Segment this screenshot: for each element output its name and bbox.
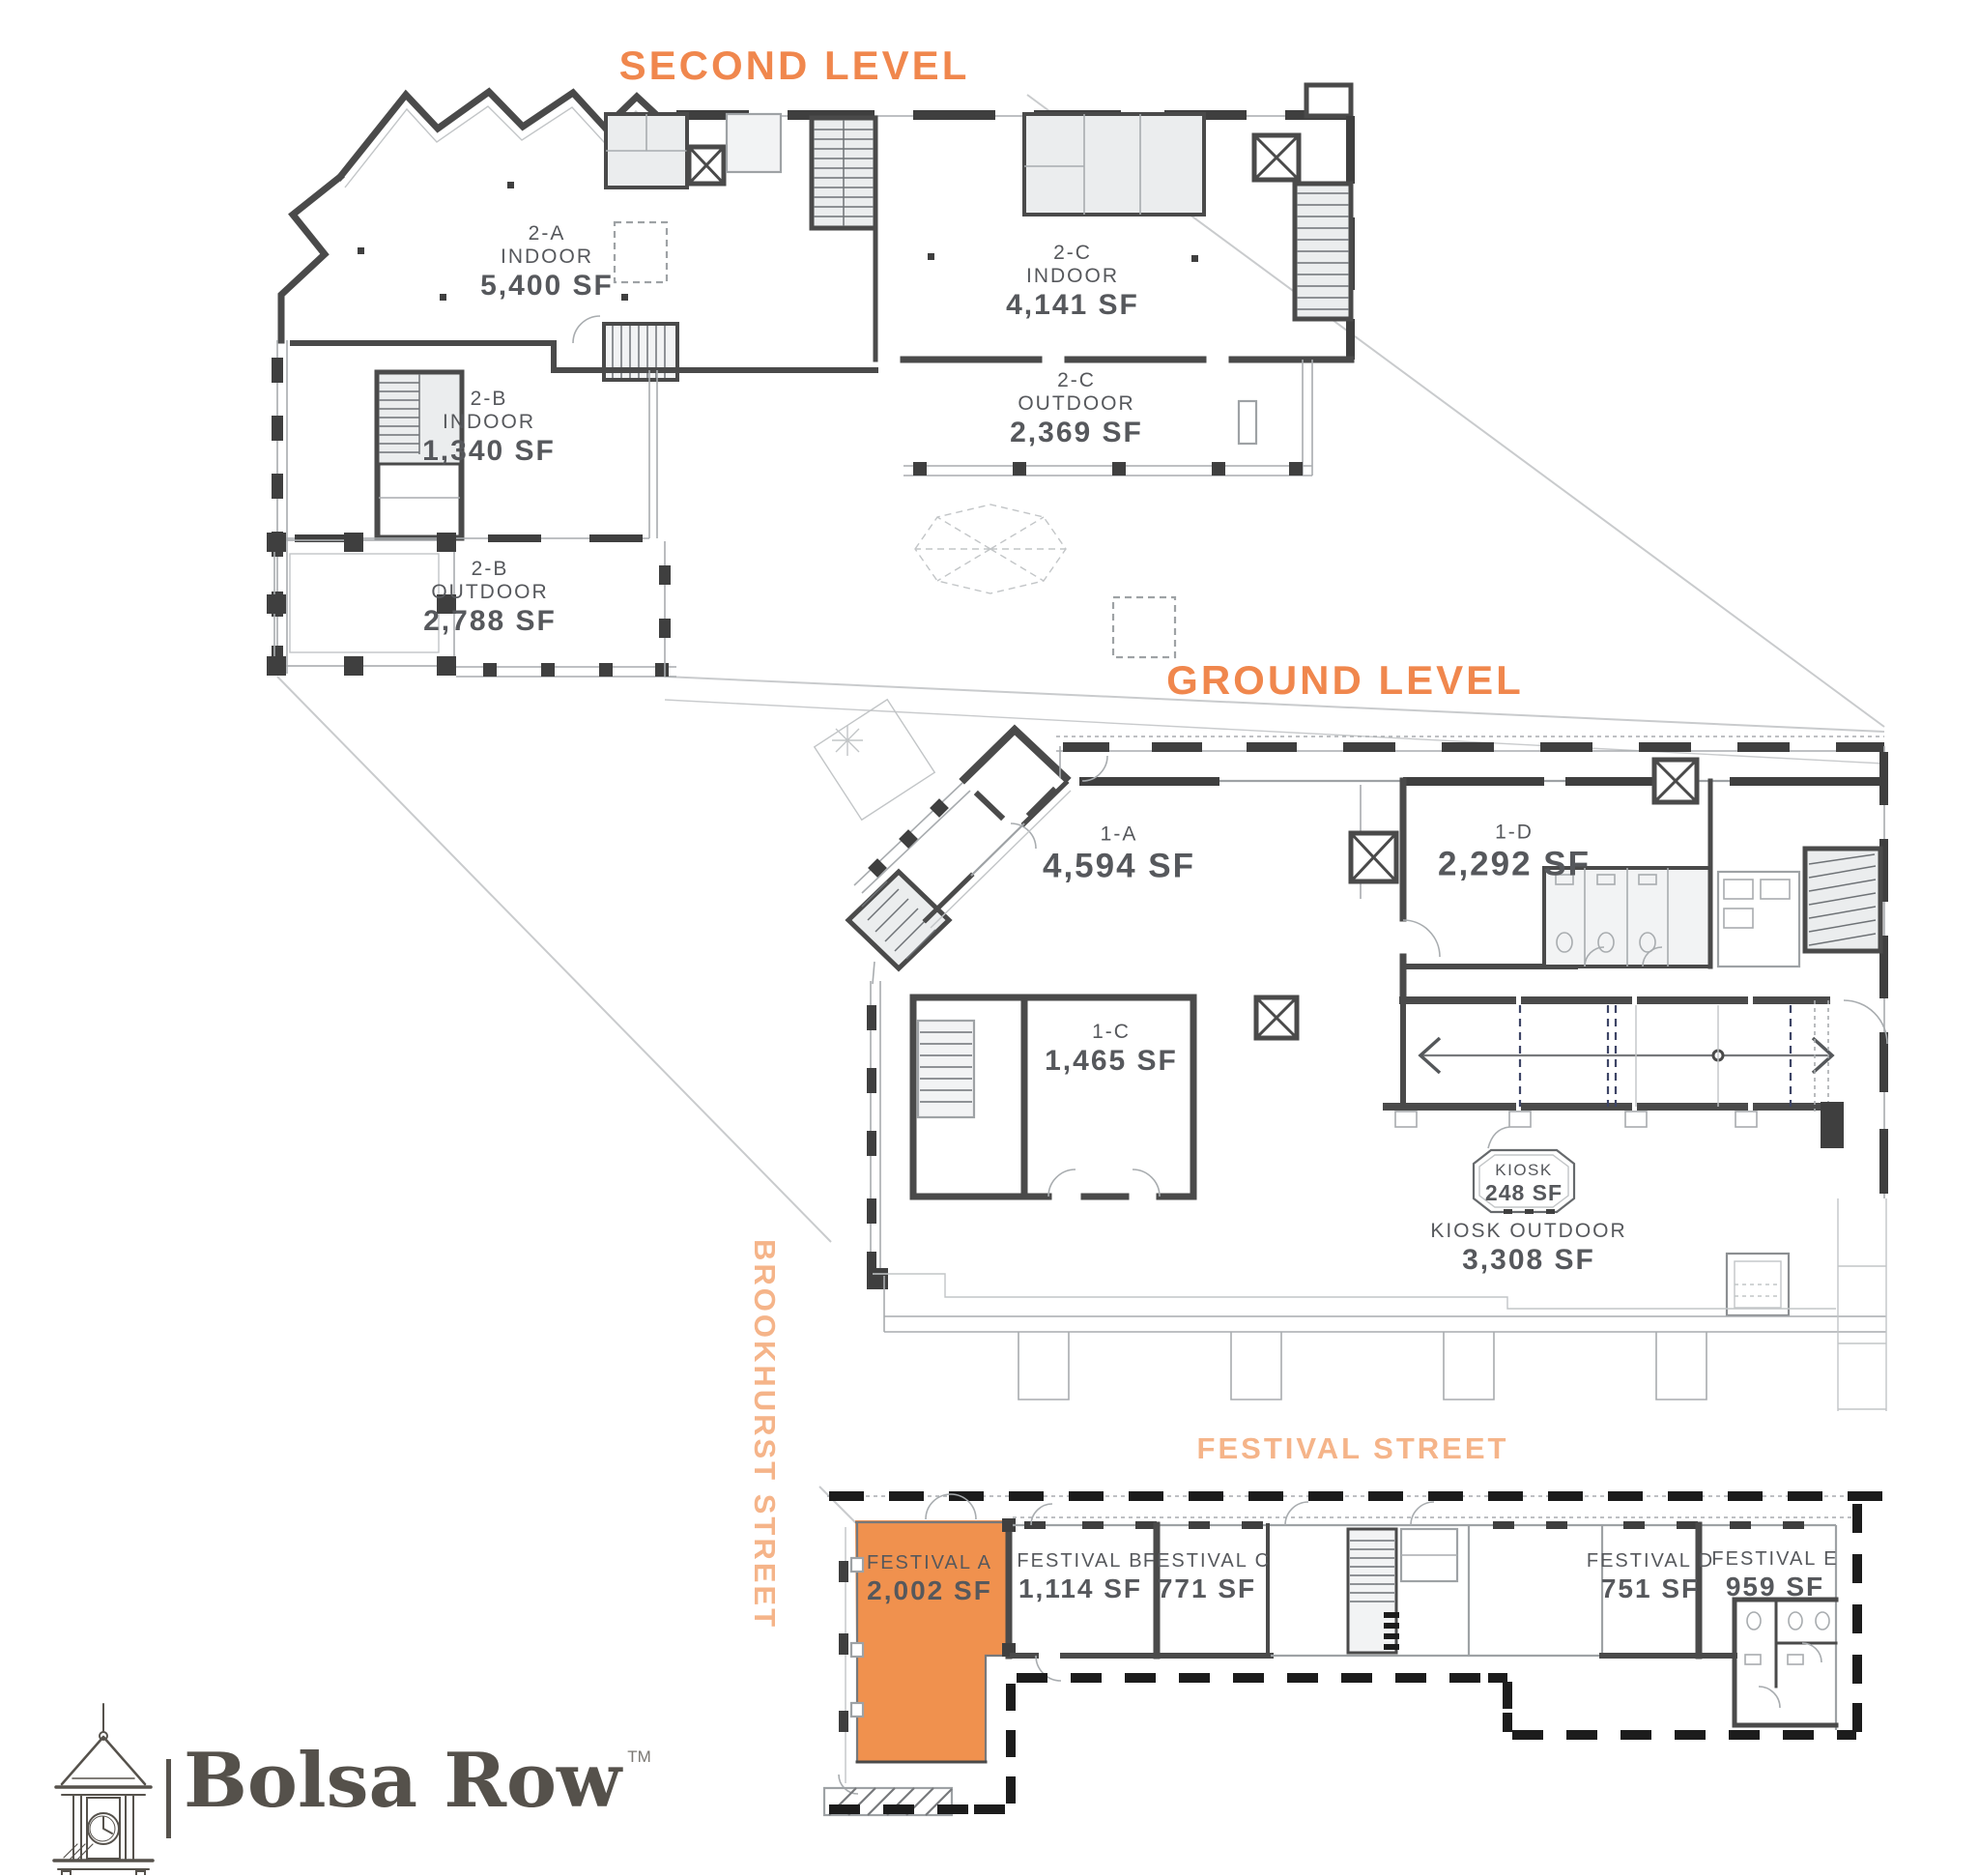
unit-label-festival-b: FESTIVAL B 1,114 SF <box>1017 1550 1143 1604</box>
unit-id: FESTIVAL A <box>867 1552 992 1574</box>
unit-type: INDOOR <box>1006 265 1139 288</box>
unit-id: KIOSK OUTDOOR <box>1430 1220 1626 1243</box>
unit-id: 2-C <box>1006 242 1139 265</box>
unit-label-2b-outdoor: 2-B OUTDOOR 2,788 SF <box>423 558 557 639</box>
festival-street-label: FESTIVAL STREET <box>1197 1431 1509 1466</box>
brookhurst-street-label: BROOKHURST STREET <box>747 1239 782 1630</box>
unit-id: 2-B <box>422 388 556 411</box>
unit-label-festival-d: FESTIVAL D 751 SF <box>1587 1550 1714 1604</box>
unit-label-2c-outdoor: 2-C OUTDOOR 2,369 SF <box>1010 369 1143 450</box>
unit-id: 2-A <box>480 222 614 245</box>
ground-level-title: GROUND LEVEL <box>1166 657 1524 704</box>
unit-label-2c-indoor: 2-C INDOOR 4,141 SF <box>1006 242 1139 323</box>
unit-label-1d: 1-D 2,292 SF <box>1438 821 1591 883</box>
unit-area: 2,292 SF <box>1438 845 1591 883</box>
unit-area: 1,340 SF <box>422 435 556 469</box>
unit-type: OUTDOOR <box>423 581 557 604</box>
unit-label-2a: 2-A INDOOR 5,400 SF <box>480 222 614 303</box>
unit-id: FESTIVAL D <box>1587 1550 1714 1573</box>
unit-id: 1-C <box>1045 1021 1178 1044</box>
unit-area: 959 SF <box>1711 1572 1838 1602</box>
unit-area: 751 SF <box>1587 1573 1714 1604</box>
unit-area: 1,465 SF <box>1045 1045 1178 1079</box>
unit-area: 2,788 SF <box>423 605 557 639</box>
brand-name: Bolsa Row <box>184 1737 621 1825</box>
unit-area: 5,400 SF <box>480 270 614 303</box>
bolsa-row-logo: Bolsa RowTM <box>0 1682 599 1875</box>
unit-area: 3,308 SF <box>1430 1244 1626 1278</box>
unit-id: FESTIVAL B <box>1017 1550 1143 1573</box>
floorplan-sheet: SECOND LEVEL GROUND LEVEL BROOKHURST STR… <box>0 0 1979 1876</box>
unit-area: 2,369 SF <box>1010 417 1143 450</box>
festival-strip-plan <box>824 1491 1886 1815</box>
unit-label-festival-c: FESTIVAL C 771 SF <box>1143 1550 1271 1604</box>
logo-wordmark: Bolsa RowTM <box>184 1744 651 1819</box>
unit-id: 2-C <box>1010 369 1143 392</box>
unit-id: FESTIVAL E <box>1711 1548 1838 1571</box>
unit-id: FESTIVAL C <box>1143 1550 1271 1573</box>
unit-id: 1-D <box>1438 821 1591 844</box>
unit-area: 248 SF <box>1485 1180 1563 1205</box>
unit-area: 771 SF <box>1143 1573 1271 1604</box>
unit-area: 4,594 SF <box>1043 847 1195 885</box>
unit-label-1c: 1-C 1,465 SF <box>1045 1021 1178 1079</box>
unit-area: 2,002 SF <box>867 1575 992 1606</box>
unit-area: 1,114 SF <box>1017 1573 1143 1604</box>
second-level-title: SECOND LEVEL <box>619 43 970 89</box>
unit-type: INDOOR <box>422 411 556 434</box>
unit-type: INDOOR <box>480 245 614 269</box>
unit-id: KIOSK <box>1485 1161 1563 1180</box>
unit-label-1a: 1-A 4,594 SF <box>1043 823 1195 885</box>
unit-label-kiosk-outdoor: KIOSK OUTDOOR 3,308 SF <box>1430 1220 1626 1278</box>
ground-level-plan <box>815 700 1888 1411</box>
unit-id: 2-B <box>423 558 557 581</box>
unit-area: 4,141 SF <box>1006 289 1139 323</box>
unit-label-2b-indoor: 2-B INDOOR 1,340 SF <box>422 388 556 469</box>
unit-id: 1-A <box>1043 823 1195 846</box>
unit-type: OUTDOOR <box>1010 392 1143 416</box>
trademark-symbol: TM <box>627 1747 651 1766</box>
logo-divider <box>166 1759 171 1838</box>
unit-label-festival-e: FESTIVAL E 959 SF <box>1711 1548 1838 1602</box>
unit-label-kiosk: KIOSK 248 SF <box>1485 1161 1563 1205</box>
unit-label-festival-a: FESTIVAL A 2,002 SF <box>867 1552 992 1606</box>
